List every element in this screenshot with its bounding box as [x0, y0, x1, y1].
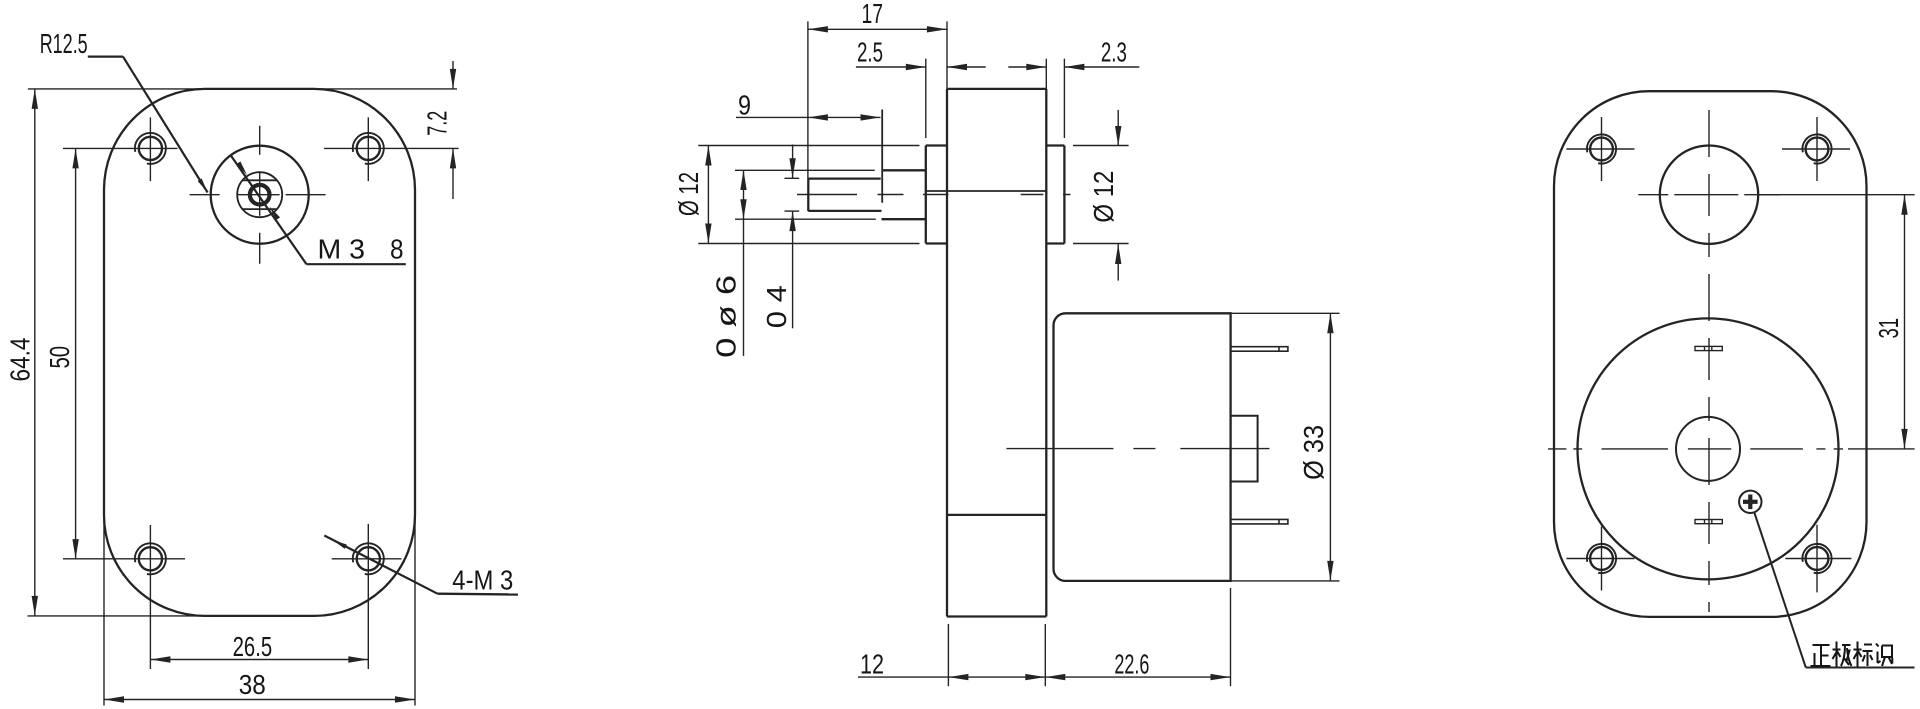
svg-text:31: 31	[1873, 318, 1904, 339]
svg-text:4-M 3: 4-M 3	[452, 564, 513, 595]
svg-text:2.3: 2.3	[1101, 37, 1127, 68]
svg-text:9: 9	[738, 90, 751, 121]
svg-text:26.5: 26.5	[233, 631, 273, 662]
svg-text:50: 50	[44, 346, 75, 369]
svg-text:Ø 12: Ø 12	[1088, 171, 1119, 223]
svg-text:Ø 12: Ø 12	[673, 172, 704, 216]
svg-text:0 4: 0 4	[761, 285, 792, 328]
svg-text:38: 38	[239, 669, 266, 700]
svg-text:0 ø 6: 0 ø 6	[711, 275, 742, 358]
svg-text:64.4: 64.4	[4, 338, 35, 382]
svg-text:17: 17	[862, 0, 884, 29]
svg-text:Ø 33: Ø 33	[1298, 425, 1329, 480]
svg-text:2.5: 2.5	[857, 37, 883, 68]
svg-text:7.2: 7.2	[422, 111, 453, 136]
svg-text:8: 8	[390, 234, 404, 265]
svg-text:22.6: 22.6	[1114, 649, 1149, 680]
svg-text:12: 12	[860, 649, 884, 680]
svg-text:M 3: M 3	[318, 234, 366, 265]
svg-text:R12.5: R12.5	[40, 28, 88, 59]
